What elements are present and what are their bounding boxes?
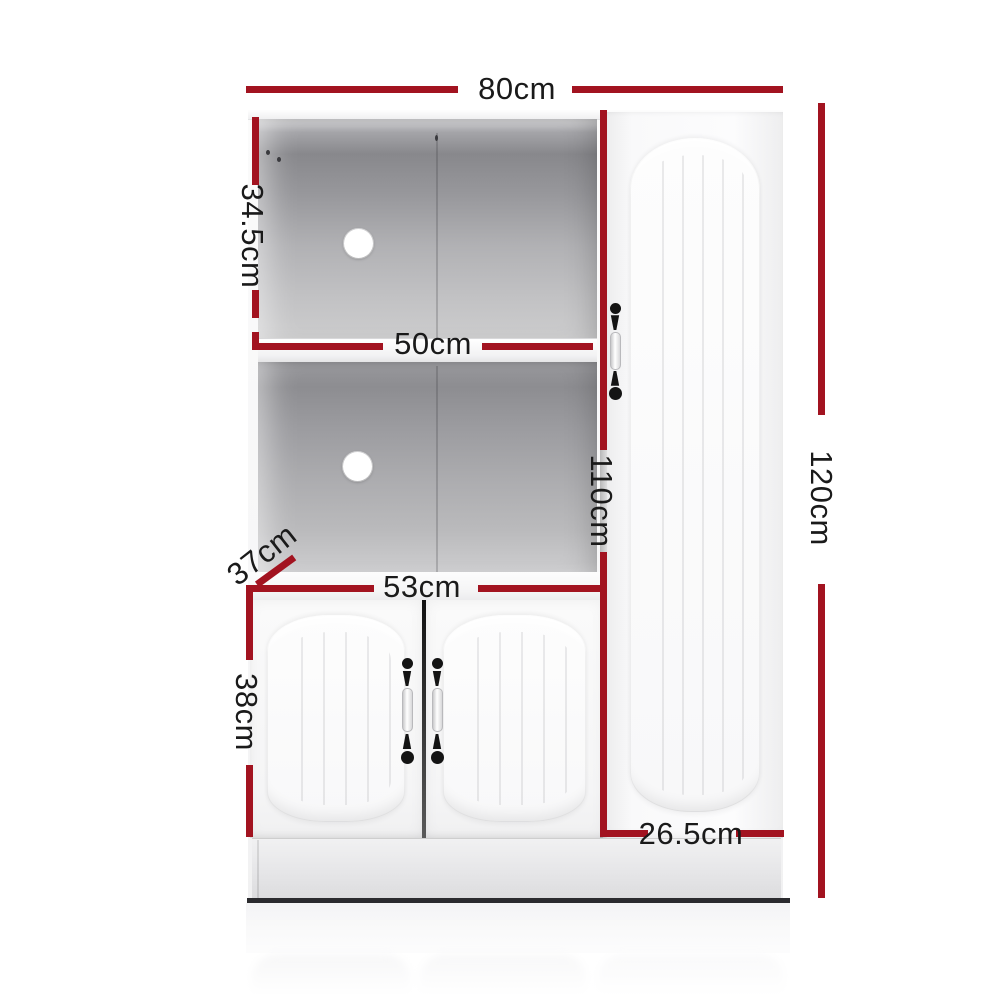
dim-label-total-height: 120cm bbox=[803, 450, 839, 546]
tall-door-grooves bbox=[644, 155, 746, 795]
dim-line-38cm-bottom bbox=[246, 765, 253, 837]
dim-label-width-top: 80cm bbox=[478, 71, 556, 107]
right-tall-door bbox=[607, 112, 783, 838]
dim-line-80cm-right bbox=[572, 86, 783, 93]
dim-line-38cm-top bbox=[246, 592, 253, 660]
tall-door-panel bbox=[630, 138, 760, 812]
door-gap-seam bbox=[422, 600, 426, 838]
handle-stem bbox=[609, 315, 622, 330]
dim-line-50cm-left bbox=[252, 343, 383, 350]
right-door-handle bbox=[428, 658, 446, 764]
door-panel-grooves bbox=[281, 632, 391, 805]
dim-label-left-section-height: 110cm bbox=[583, 454, 619, 547]
handle-stem bbox=[431, 671, 444, 686]
dim-line-34_5cm-top bbox=[252, 117, 259, 185]
left-door-handle bbox=[398, 658, 416, 764]
dim-line-120cm-top bbox=[818, 103, 825, 415]
dim-line-120cm-bottom bbox=[818, 584, 825, 898]
dim-label-lower-doors-width: 53cm bbox=[383, 569, 461, 605]
handle-stem bbox=[401, 734, 414, 749]
handle-spindle bbox=[610, 332, 621, 370]
dim-line-53cm-right bbox=[478, 585, 600, 592]
dim-label-right-door-width: 26.5cm bbox=[639, 816, 744, 852]
dim-line-110cm-bottom bbox=[600, 552, 607, 837]
handle-knob-bottom bbox=[609, 387, 622, 400]
dim-label-inner-shelf-width: 50cm bbox=[394, 326, 472, 362]
handle-knob-bottom bbox=[401, 751, 414, 764]
handle-knob-top bbox=[432, 658, 443, 669]
lower-left-door bbox=[250, 600, 422, 838]
handle-stem bbox=[609, 371, 622, 386]
dim-line-50cm-right bbox=[482, 343, 593, 350]
door-panel bbox=[267, 615, 405, 822]
back-panel-nail bbox=[435, 135, 438, 141]
dim-line-80cm-left bbox=[246, 86, 458, 93]
reflection-fade bbox=[246, 903, 790, 1000]
tall-door-handle bbox=[606, 303, 624, 400]
handle-spindle bbox=[432, 688, 443, 732]
cable-hole bbox=[343, 452, 372, 481]
product-dimension-diagram: 80cm 34.5cm 50cm 110cm 120cm 37cm 53cm 3… bbox=[0, 0, 1000, 1000]
dim-line-34_5cm-bottom bbox=[252, 290, 259, 318]
handle-stem bbox=[431, 734, 444, 749]
back-panel-seam bbox=[436, 366, 438, 572]
door-panel-grooves bbox=[457, 632, 572, 805]
handle-stem bbox=[401, 671, 414, 686]
dim-line-53cm-left bbox=[246, 585, 374, 592]
handle-knob-top bbox=[402, 658, 413, 669]
cable-hole bbox=[344, 229, 373, 258]
dim-label-upper-shelf-height: 34.5cm bbox=[234, 184, 270, 289]
shelf-pin-hole bbox=[277, 157, 281, 162]
lower-shelf-compartment bbox=[258, 362, 597, 572]
floor-reflection bbox=[246, 903, 790, 1000]
upper-shelf-compartment bbox=[258, 119, 597, 338]
door-panel bbox=[443, 615, 586, 822]
handle-spindle bbox=[402, 688, 413, 732]
dim-label-lower-doors-height: 38cm bbox=[228, 673, 264, 751]
dim-line-110cm-top bbox=[600, 110, 607, 450]
kickboard-seam bbox=[257, 840, 259, 898]
lower-right-door bbox=[426, 600, 603, 838]
handle-knob-top bbox=[610, 303, 621, 314]
back-panel-seam bbox=[436, 133, 438, 338]
shelf-pin-hole bbox=[266, 150, 270, 155]
handle-knob-bottom bbox=[431, 751, 444, 764]
